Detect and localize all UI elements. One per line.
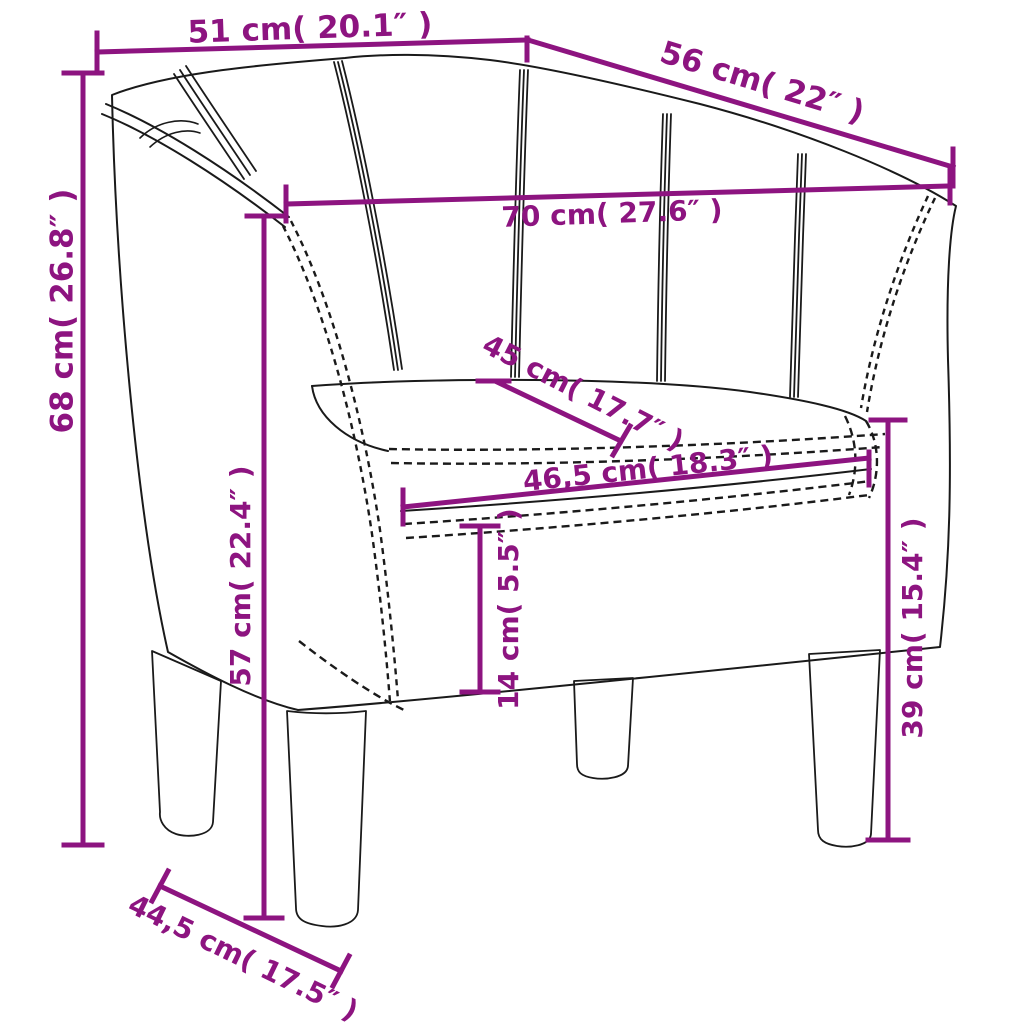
front-left-leg: [287, 711, 366, 927]
front-right-leg: [809, 650, 880, 847]
product-dimension-image: 51 cm( 20.1″ ) 56 cm( 22″ ) 70 cm( 27.6″…: [0, 0, 1024, 1024]
dim-label-top-width: 51 cm( 20.1″ ): [187, 9, 433, 49]
base-piping: [299, 481, 871, 711]
left-armrest-roll: [106, 104, 289, 217]
seat-cushion-left-cap: [312, 386, 388, 451]
dim-label-total-height: 68 cm( 26.8″ ): [48, 189, 79, 434]
right-armrest-piping: [861, 196, 935, 412]
back-left-leg: [152, 651, 221, 836]
dim-label-cushion-thickness: 14 cm( 5.5″ ): [495, 508, 523, 710]
dim-label-armrest-height: 57 cm( 22.4″ ): [227, 465, 255, 686]
dim-label-seat-height: 39 cm( 15.4″ ): [899, 517, 927, 738]
left-armrest-front-piping: [283, 221, 398, 702]
dim-label-inner-width: 70 cm( 27.6″ ): [501, 196, 723, 232]
back-right-leg: [574, 678, 633, 779]
